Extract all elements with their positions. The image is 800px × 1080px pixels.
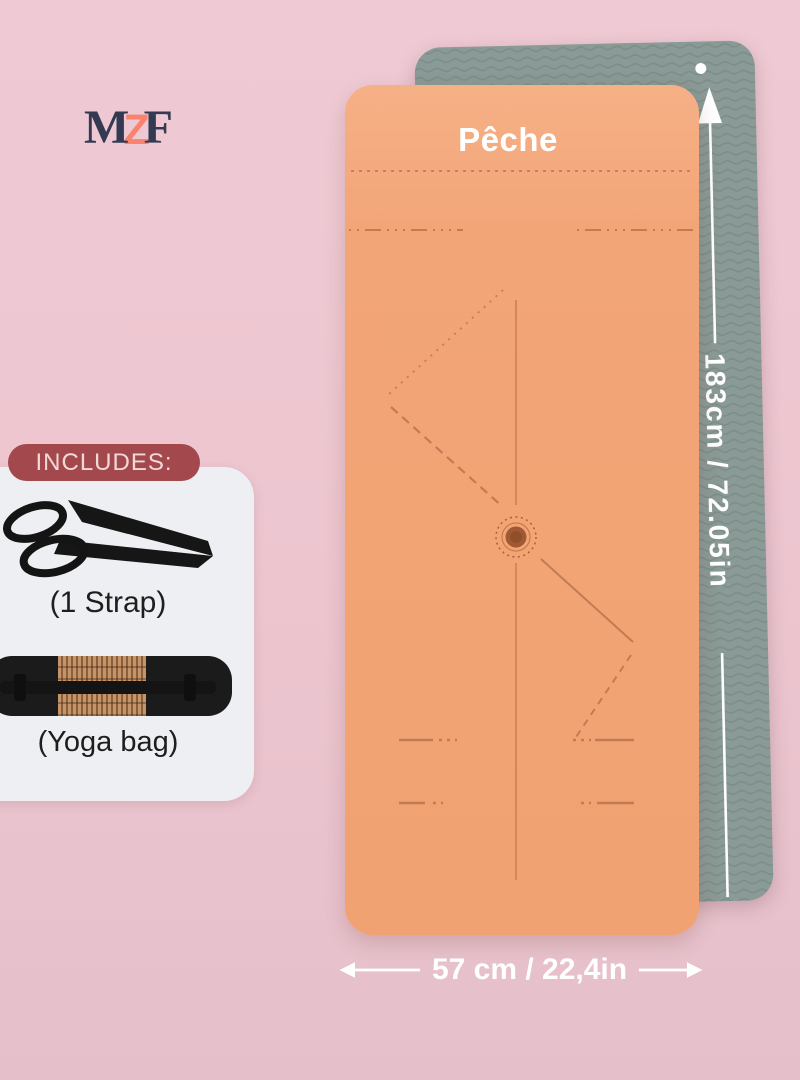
strap-item-label: (1 Strap)	[0, 586, 216, 620]
logo-letter-m: M	[84, 104, 129, 152]
yoga-bag-item-label: (Yoga bag)	[0, 726, 216, 759]
length-dimension-label: 183cm / 72.05in	[698, 353, 735, 589]
width-right-arrow-icon	[639, 958, 704, 982]
strap-icon	[2, 494, 216, 582]
product-image: M Z F 183cm / 72.05in	[0, 0, 800, 1080]
yoga-bag-strap-mount	[184, 674, 196, 701]
width-left-arrow-icon	[338, 958, 420, 982]
includes-badge: INCLUDES:	[8, 444, 200, 481]
alignment-markings	[345, 85, 699, 935]
width-dimension-label: 57 cm / 22,4in	[432, 953, 627, 987]
mat-center-medallion	[496, 517, 536, 557]
brand-logo: M Z F	[84, 104, 173, 152]
logo-letter-f: F	[144, 104, 173, 152]
includes-title: INCLUDES:	[35, 449, 172, 477]
yoga-bag-icon	[0, 656, 232, 716]
yoga-mat-front: Pêche	[345, 85, 699, 935]
mat-color-name: Pêche	[345, 121, 671, 159]
yoga-bag-strap-mount	[14, 674, 26, 701]
width-dimension: 57 cm / 22,4in	[338, 948, 704, 992]
